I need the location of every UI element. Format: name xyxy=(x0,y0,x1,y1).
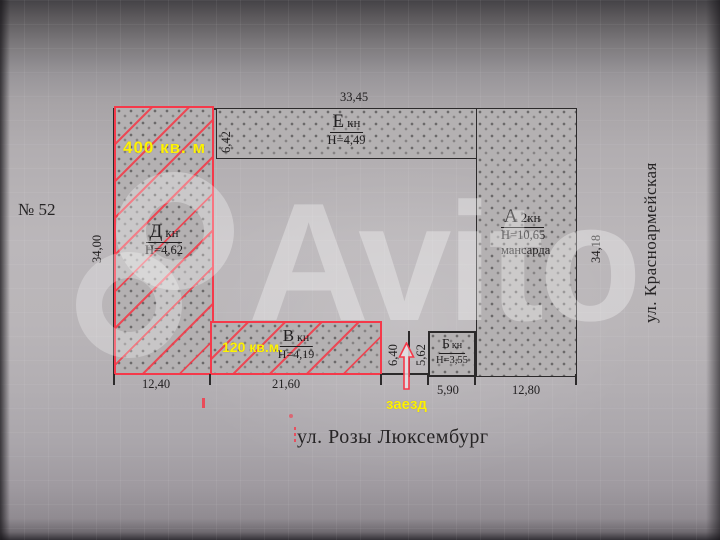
building-e: Екн Н=4,49 xyxy=(216,108,477,159)
red-mark xyxy=(202,398,205,408)
area-note-120: 120 кв.м. xyxy=(222,339,283,355)
dim-tick xyxy=(113,374,115,385)
building-b-type: кн xyxy=(452,340,462,351)
building-e-height: Н=4,49 xyxy=(328,134,366,148)
building-d-name: Дкн xyxy=(146,222,181,243)
building-e-label: Екн Н=4,49 xyxy=(328,112,366,148)
dim-left-34-00: 34,00 xyxy=(90,235,105,263)
building-b-height: Н=3,55 xyxy=(436,355,468,367)
building-e-name: Екн xyxy=(330,112,364,133)
building-b-name: Бкн xyxy=(439,336,465,354)
building-a-note: мансарда xyxy=(501,243,550,257)
dim-b-height-5-62: 5,62 xyxy=(414,344,429,366)
building-b: Бкн Н=3,55 xyxy=(428,331,476,377)
area-note-400: 400 кв. м xyxy=(123,138,206,158)
building-e-letter: Е xyxy=(333,111,345,132)
dim-top-33-45: 33,45 xyxy=(340,90,368,105)
dim-tick xyxy=(474,374,476,385)
entrance-label: заезд xyxy=(386,396,427,413)
dim-e-height-6-42: 6,42 xyxy=(219,131,234,153)
building-d-type: кн xyxy=(165,225,178,240)
building-a-type: 2кн xyxy=(521,210,541,225)
building-a: А2кн Н=10,65 мансарда xyxy=(476,108,577,377)
building-a-name: А2кн xyxy=(501,207,544,228)
dim-tick xyxy=(209,374,211,385)
building-v-name: Вкн xyxy=(280,327,313,347)
scanned-site-plan: Дкн Н=4,62 Екн Н=4,49 А2кн Н=10,65 манса… xyxy=(0,0,720,540)
building-b-letter: Б xyxy=(442,337,450,352)
dim-tick xyxy=(575,374,577,385)
building-a-label: А2кн Н=10,65 мансарда xyxy=(501,207,550,257)
red-mark xyxy=(289,414,293,418)
building-a-height: Н=10,65 xyxy=(501,229,550,243)
dim-tick xyxy=(380,374,382,385)
building-v-label: Вкн Н=4,19 xyxy=(278,327,314,361)
building-d-height: Н=4,62 xyxy=(145,244,183,258)
building-b-label: Бкн Н=3,55 xyxy=(436,335,468,366)
building-v-type: кн xyxy=(297,330,309,344)
building-v-letter: В xyxy=(283,326,294,345)
plot-number: № 52 xyxy=(18,200,55,220)
building-v-height: Н=4,19 xyxy=(278,348,314,361)
dim-bottom-21-60: 21,60 xyxy=(272,377,300,392)
dim-tick xyxy=(427,374,429,385)
building-e-type: кн xyxy=(347,115,360,130)
scan-edge-shadow-right xyxy=(706,0,720,540)
street-rosa-luxemburg: ул. Розы Люксембург xyxy=(297,426,489,449)
dim-bottom-5-90: 5,90 xyxy=(437,383,459,398)
street-krasnoarmeyskaya: ул. Красноармейская xyxy=(641,162,661,323)
red-mark xyxy=(294,427,296,445)
dim-bottom-12-40: 12,40 xyxy=(142,377,170,392)
dim-right-34-18: 34,18 xyxy=(589,235,604,263)
building-d-letter: Д xyxy=(149,221,162,242)
entrance-arrow-icon xyxy=(398,342,415,390)
dim-bottom-12-80: 12,80 xyxy=(512,383,540,398)
scan-edge-shadow-left xyxy=(0,0,10,540)
building-d-label: Дкн Н=4,62 xyxy=(145,222,183,258)
building-a-letter: А xyxy=(504,206,518,227)
